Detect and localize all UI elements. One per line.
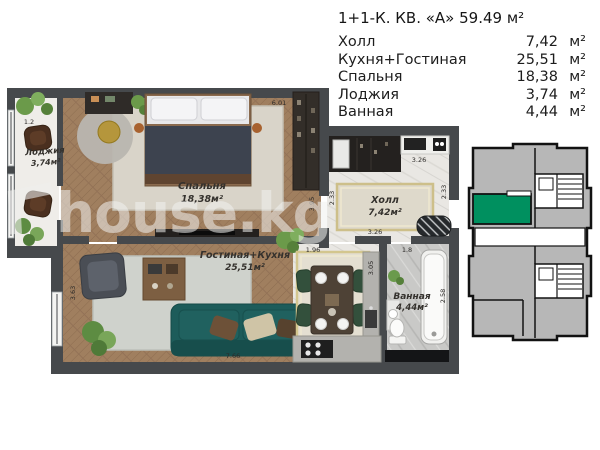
bathroom-label: Ванная	[393, 292, 430, 302]
area-unit: м²	[558, 87, 586, 105]
living-label: Гостиная+Кухня	[200, 250, 290, 261]
room-area-value: 3,74	[508, 87, 558, 105]
bathroom-area: 4,44м²	[395, 303, 428, 313]
keyplan-svg	[463, 140, 598, 346]
bath-mat	[385, 350, 449, 362]
living-area: 25,51м²	[225, 263, 265, 273]
dim-dining-width: 1.96	[306, 246, 320, 254]
washing-machine	[433, 138, 446, 151]
bed-blanket	[145, 126, 251, 174]
kitchen-appliance-counter	[401, 136, 449, 154]
area-unit: м²	[558, 52, 586, 70]
highlighted-unit	[473, 194, 531, 224]
highlighted-unit-notch	[507, 191, 531, 196]
legend-row: Спальня 18,38 м²	[338, 69, 586, 87]
dim-living-width: 7.66	[226, 352, 240, 360]
coffee-table	[143, 258, 185, 300]
dining-table	[311, 266, 353, 334]
building-keyplan	[463, 140, 598, 346]
wall-loggia-bedroom-a	[57, 88, 63, 186]
room-name: Холл	[338, 34, 508, 52]
corridor	[475, 228, 585, 246]
dim-bedroom-width: 6.01	[272, 99, 286, 107]
room-area-value: 25,51	[508, 52, 558, 70]
legend-row: Холл 7,42 м²	[338, 34, 586, 52]
dim-bedroom-depth: 3.95	[308, 197, 316, 211]
bedroom-area: 18,38м²	[181, 194, 224, 205]
sofa	[171, 304, 313, 356]
dresser	[85, 92, 133, 114]
area-unit: м²	[558, 69, 586, 87]
room-name: Кухня+Гостиная	[338, 52, 508, 70]
wall-hall-living-a	[355, 236, 391, 244]
hall-closet	[329, 136, 401, 172]
wall-top-right	[319, 126, 459, 136]
hall-label: Холл	[370, 195, 399, 206]
hall-furniture	[329, 136, 451, 236]
kitchen-sink	[365, 310, 377, 328]
room-name: Спальня	[338, 69, 508, 87]
room-area-value: 18,38	[508, 69, 558, 87]
wardrobe	[293, 92, 319, 190]
bedside-lamp	[252, 123, 262, 133]
bedside-lamp	[134, 123, 144, 133]
wall-bottom	[51, 362, 459, 374]
tv	[179, 231, 235, 235]
apartment-title: 1+1-К. КВ. «А» 59.49 м²	[338, 8, 586, 28]
dim-bathroom-depth: 2.58	[439, 289, 447, 303]
room-area-value: 4,44	[508, 104, 558, 122]
dim-living-depth: 3.63	[69, 286, 77, 300]
room-area-value: 7,42	[508, 34, 558, 52]
stair-core-lower	[535, 264, 583, 298]
dim-kitchen-depth: 3.05	[367, 261, 375, 275]
floorplan: Лоджия 3,74м² Спальня 18,38м² Холл 7,42м…	[5, 88, 460, 378]
wall-right	[449, 126, 459, 366]
armchair	[79, 252, 127, 300]
dim-hall-depth-left: 2.33	[328, 191, 336, 205]
dim-hall-width-top: 3.26	[412, 156, 426, 164]
bedroom-label: Спальня	[178, 181, 227, 192]
area-unit: м²	[558, 104, 586, 122]
wall-loggia-bedroom-b	[57, 220, 63, 248]
dim-loggia-width: 1.2	[24, 118, 34, 126]
floorplan-svg: Лоджия 3,74м² Спальня 18,38м² Холл 7,42м…	[5, 88, 460, 378]
dim-hall-width-bottom: 3.26	[368, 228, 382, 236]
pouf	[98, 121, 120, 143]
stair-core-upper	[535, 174, 583, 208]
dim-bathroom-width: 1.8	[402, 246, 412, 254]
dim-hall-depth-right: 2.33	[440, 185, 448, 199]
wall-bedroom-living-a	[63, 236, 89, 244]
legend-row: Кухня+Гостиная 25,51 м²	[338, 52, 586, 70]
wall-hall-living-b	[411, 236, 459, 244]
wall-bedroom-hall-a	[319, 88, 329, 196]
area-unit: м²	[558, 34, 586, 52]
hall-area: 7,42м²	[368, 208, 402, 218]
entry-mat	[417, 216, 451, 236]
